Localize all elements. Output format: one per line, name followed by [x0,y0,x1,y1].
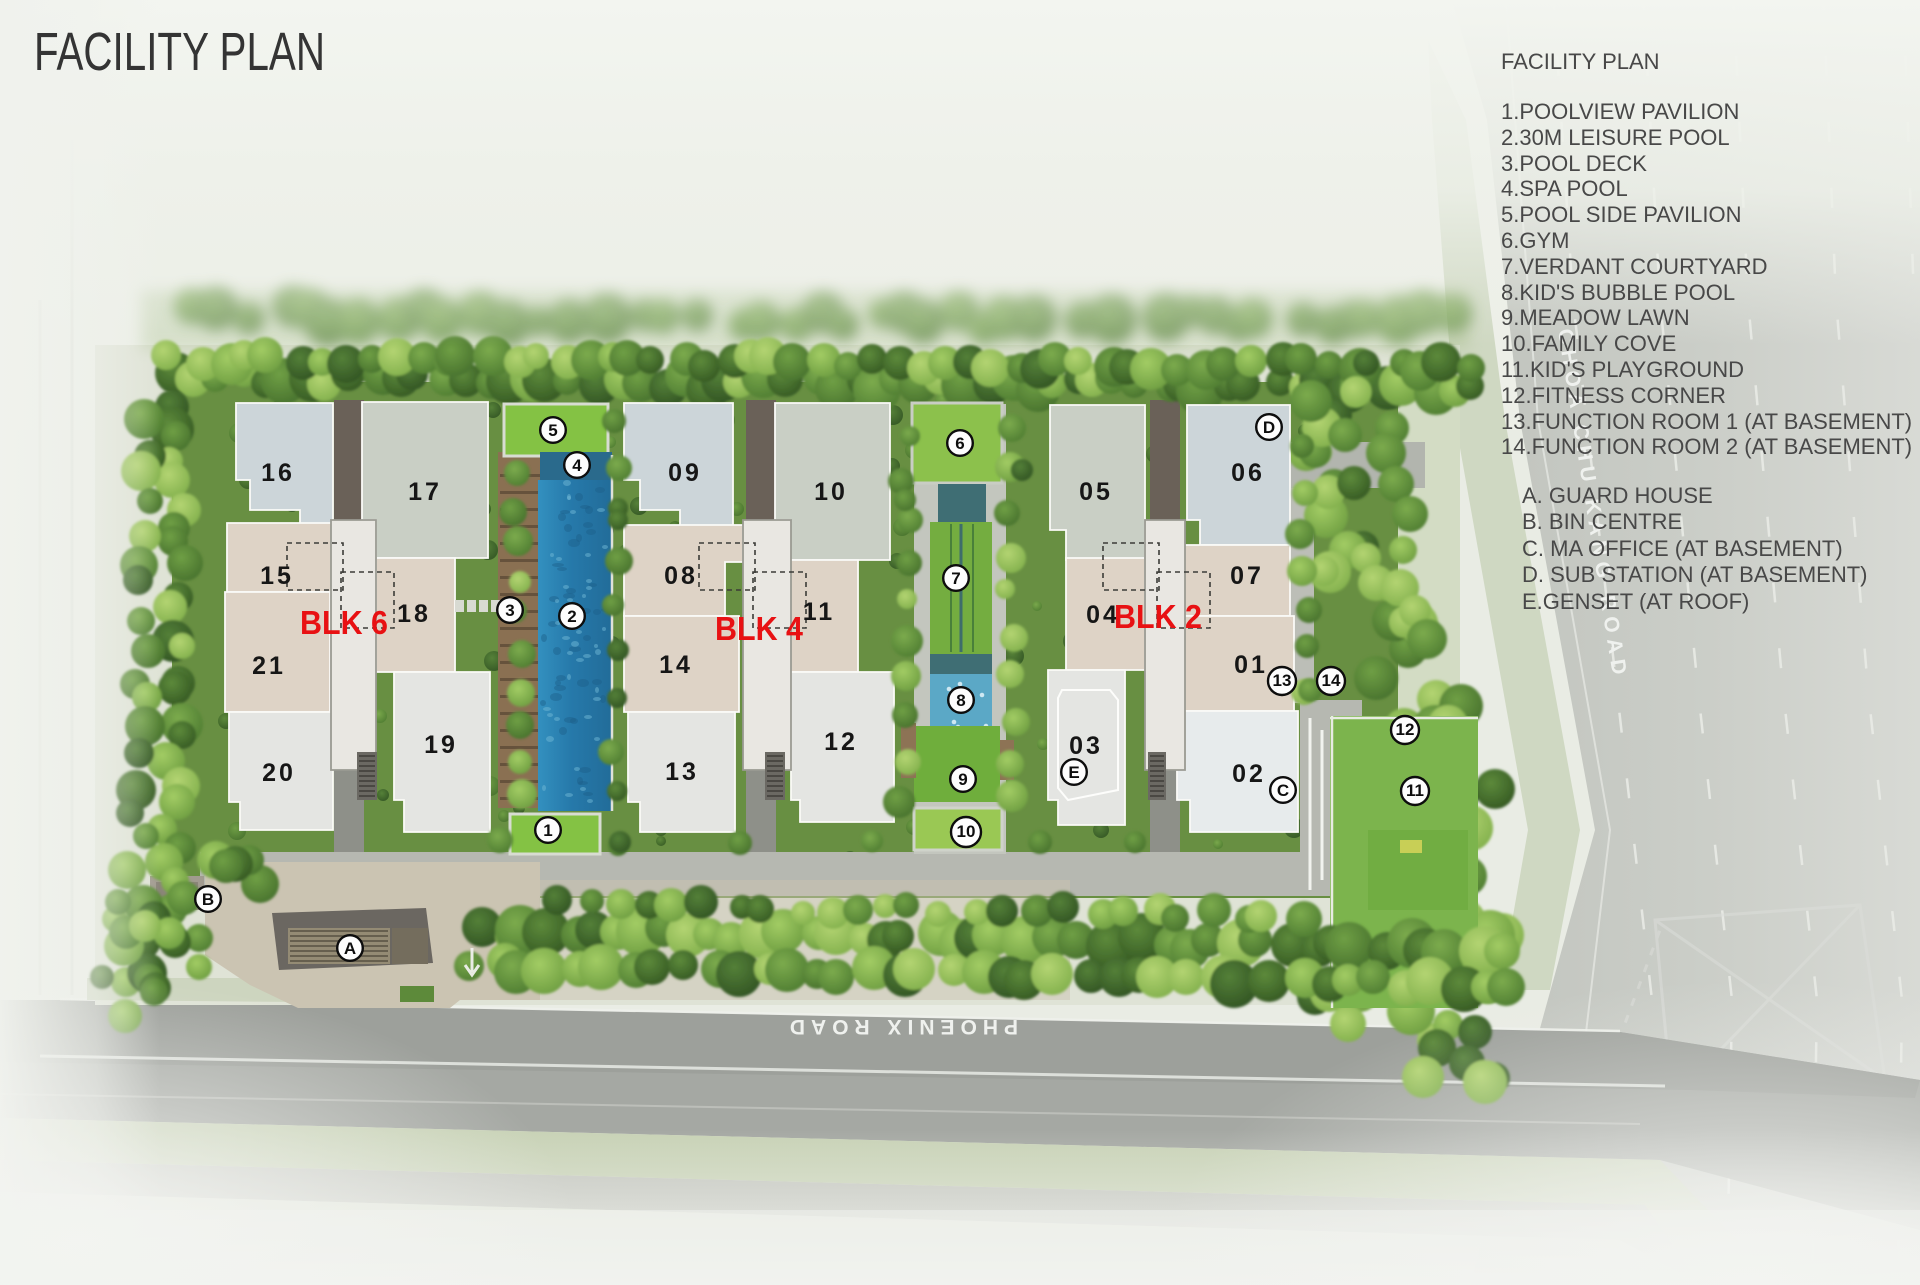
svg-text:13: 13 [1273,671,1292,690]
svg-text:21: 21 [252,652,286,680]
svg-text:18: 18 [397,600,431,628]
svg-text:10: 10 [957,822,976,841]
svg-text:5.POOL SIDE PAVILION: 5.POOL SIDE PAVILION [1501,202,1741,227]
svg-text:12: 12 [1396,720,1415,739]
svg-text:14: 14 [1322,671,1341,690]
svg-text:BLK 2: BLK 2 [1114,598,1202,635]
svg-text:01: 01 [1234,651,1268,679]
svg-text:6: 6 [955,434,964,453]
svg-text:13: 13 [665,758,699,786]
svg-text:5: 5 [548,421,557,440]
svg-text:BLK 4: BLK 4 [715,610,804,647]
svg-text:1: 1 [543,821,552,840]
svg-text:05: 05 [1079,478,1113,506]
svg-text:4: 4 [572,456,582,475]
svg-text:11.KID'S PLAYGROUND: 11.KID'S PLAYGROUND [1501,357,1744,382]
svg-text:7.VERDANT COURTYARD: 7.VERDANT COURTYARD [1501,254,1768,279]
svg-text:16: 16 [261,459,295,487]
svg-text:2: 2 [567,607,576,626]
svg-text:C: C [1277,781,1289,800]
svg-text:19: 19 [424,731,458,759]
svg-text:20: 20 [262,759,296,787]
svg-text:11: 11 [1406,781,1424,800]
svg-text:B: B [202,890,214,909]
svg-text:13.FUNCTION ROOM 1 (AT BASEMEN: 13.FUNCTION ROOM 1 (AT BASEMENT) [1501,409,1912,434]
svg-text:12: 12 [824,728,858,756]
svg-text:07: 07 [1230,562,1264,590]
svg-text:2.30M LEISURE POOL: 2.30M LEISURE POOL [1501,125,1730,150]
svg-text:BLK 6: BLK 6 [300,604,388,641]
svg-text:8: 8 [956,691,965,710]
svg-text:A: A [344,939,356,958]
svg-text:E.GENSET (AT ROOF): E.GENSET (AT ROOF) [1522,589,1749,614]
svg-text:9: 9 [958,770,967,789]
svg-text:7: 7 [951,569,960,588]
svg-text:12.FITNESS CORNER: 12.FITNESS CORNER [1501,383,1726,408]
svg-text:14.FUNCTION ROOM 2 (AT BASEMEN: 14.FUNCTION ROOM 2 (AT BASEMENT) [1501,434,1912,459]
svg-text:3.POOL DECK: 3.POOL DECK [1501,151,1647,176]
svg-text:FACILITY PLAN: FACILITY PLAN [34,22,325,82]
svg-text:15: 15 [260,562,294,590]
svg-text:09: 09 [668,459,702,487]
svg-text:02: 02 [1232,760,1266,788]
svg-text:1.POOLVIEW PAVILION: 1.POOLVIEW PAVILION [1501,99,1739,124]
svg-text:6.GYM: 6.GYM [1501,228,1569,253]
svg-text:C. MA OFFICE (AT BASEMENT): C. MA OFFICE (AT BASEMENT) [1522,536,1843,561]
svg-text:17: 17 [408,478,442,506]
svg-text:10: 10 [814,478,848,506]
svg-text:B. BIN CENTRE: B. BIN CENTRE [1522,509,1682,534]
svg-text:11: 11 [803,598,835,626]
svg-text:PHOENIX ROAD: PHOENIX ROAD [784,1015,1018,1038]
svg-text:3: 3 [505,601,514,620]
svg-text:A. GUARD HOUSE: A. GUARD HOUSE [1522,483,1713,508]
svg-text:8.KID'S BUBBLE POOL: 8.KID'S BUBBLE POOL [1501,280,1735,305]
svg-text:D: D [1263,418,1275,437]
svg-text:E: E [1068,763,1079,782]
svg-text:14: 14 [659,651,693,679]
svg-text:4.SPA POOL: 4.SPA POOL [1501,176,1628,201]
svg-text:FACILITY PLAN: FACILITY PLAN [1501,49,1660,74]
svg-text:9.MEADOW LAWN: 9.MEADOW LAWN [1501,305,1690,330]
svg-text:03: 03 [1069,732,1103,760]
svg-text:D. SUB STATION (AT BASEMENT): D. SUB STATION (AT BASEMENT) [1522,562,1868,587]
svg-text:06: 06 [1231,459,1265,487]
svg-text:10.FAMILY COVE: 10.FAMILY COVE [1501,331,1676,356]
svg-text:08: 08 [664,562,698,590]
